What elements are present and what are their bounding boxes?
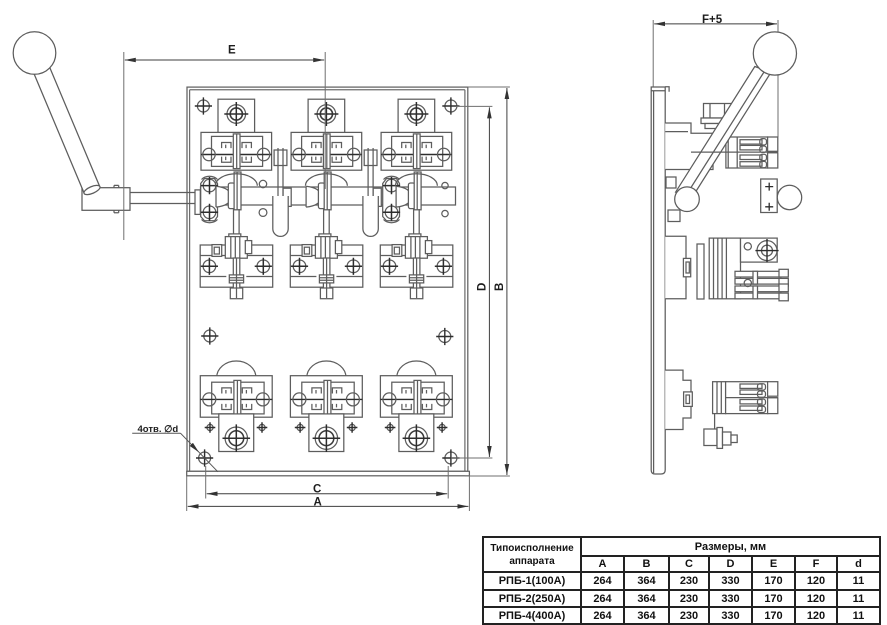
- svg-text:B: B: [494, 283, 506, 291]
- svg-text:E: E: [228, 45, 236, 57]
- svg-text:D: D: [477, 283, 489, 291]
- svg-text:A: A: [314, 496, 322, 508]
- svg-text:4отв. ∅d: 4отв. ∅d: [138, 424, 179, 435]
- svg-text:C: C: [313, 483, 321, 495]
- svg-text:F+5: F+5: [702, 14, 723, 26]
